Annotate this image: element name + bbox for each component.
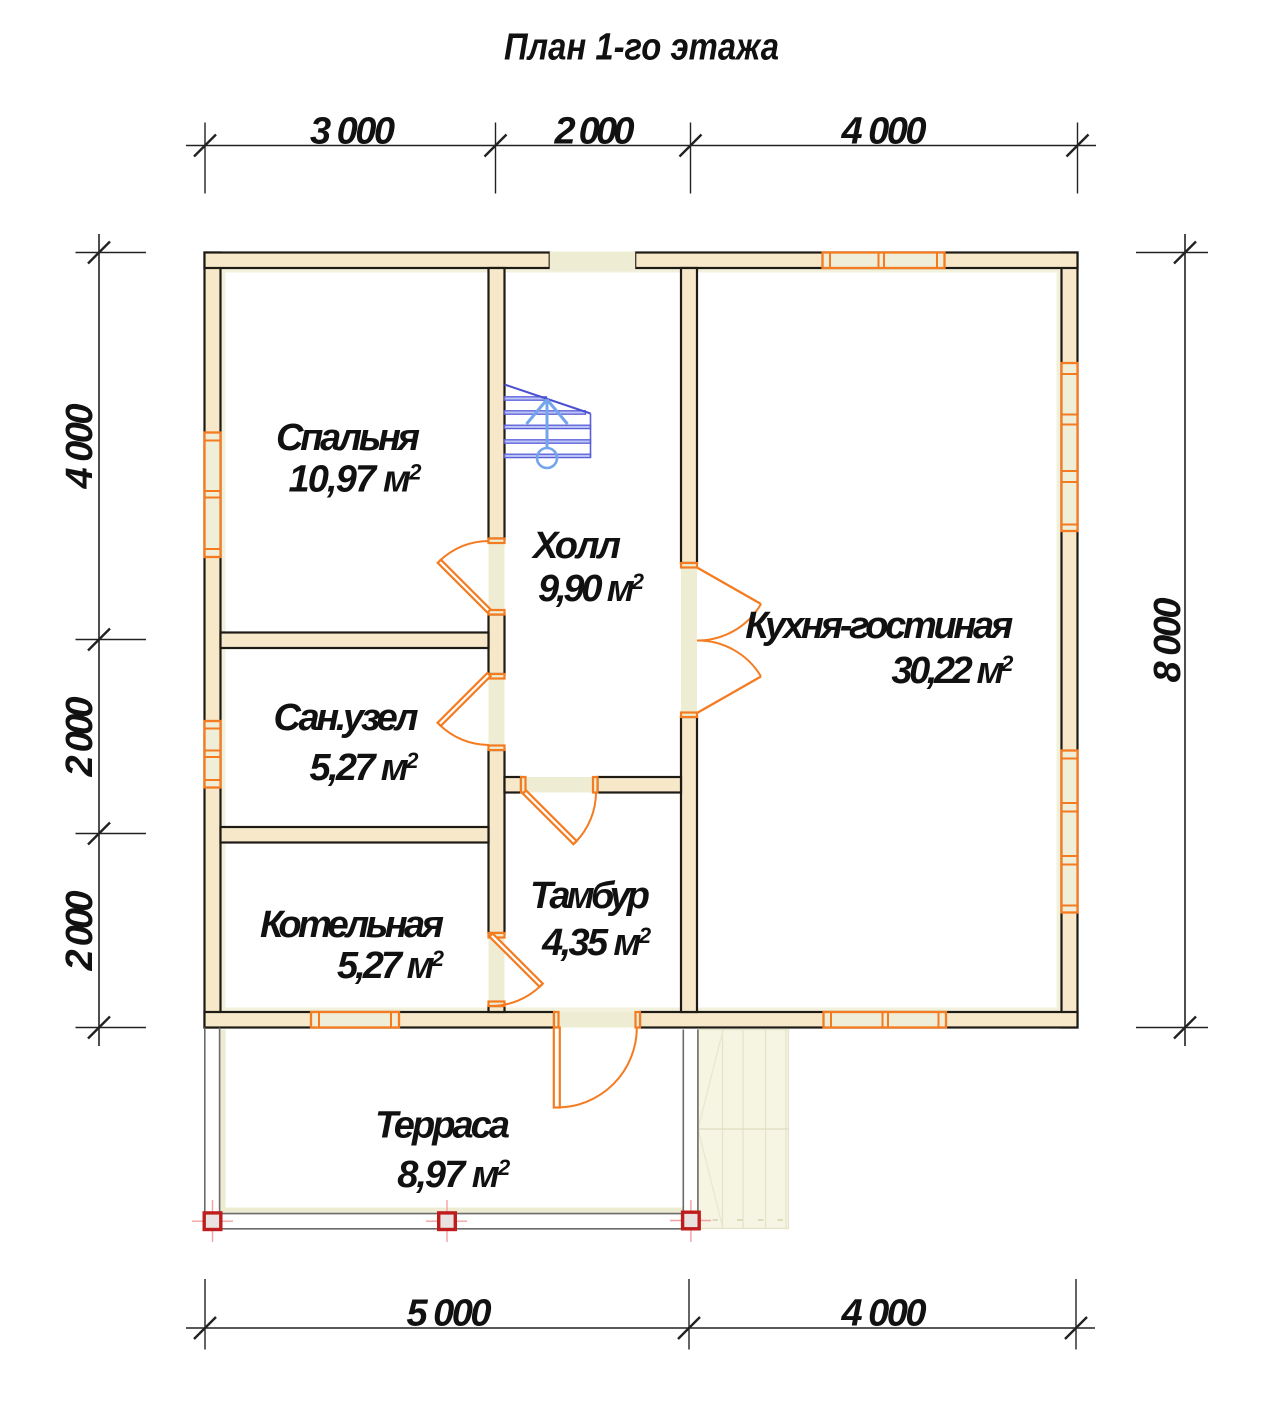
- svg-text:8 000: 8 000: [1147, 598, 1189, 683]
- svg-text:2 000: 2 000: [554, 111, 635, 153]
- svg-text:4 000: 4 000: [841, 111, 927, 153]
- svg-text:5,27 м2: 5,27 м2: [310, 747, 420, 789]
- svg-text:Тамбур: Тамбур: [530, 875, 650, 917]
- svg-text:Терраса: Терраса: [375, 1105, 510, 1147]
- svg-text:4,35 м2: 4,35 м2: [541, 922, 652, 964]
- svg-text:9,90 м2: 9,90 м2: [538, 568, 645, 610]
- svg-text:5 000: 5 000: [407, 1293, 492, 1335]
- svg-text:Спальня: Спальня: [276, 417, 420, 459]
- svg-text:Холл: Холл: [531, 525, 621, 567]
- svg-text:Кухня-гостиная: Кухня-гостиная: [745, 605, 1013, 647]
- svg-text:5,27 м2: 5,27 м2: [337, 945, 445, 987]
- svg-text:2 000: 2 000: [59, 891, 101, 972]
- svg-text:Сан.узел: Сан.узел: [274, 697, 419, 739]
- svg-text:3 000: 3 000: [310, 111, 395, 153]
- svg-text:10,97 м2: 10,97 м2: [289, 459, 423, 501]
- svg-text:2 000: 2 000: [59, 697, 101, 778]
- svg-text:Котельная: Котельная: [260, 904, 444, 946]
- svg-text:План 1-го этажа: План 1-го этажа: [504, 27, 779, 69]
- svg-text:4 000: 4 000: [841, 1293, 927, 1335]
- svg-text:30,22 м2: 30,22 м2: [891, 650, 1014, 692]
- svg-text:4 000: 4 000: [59, 404, 101, 490]
- svg-text:8,97 м2: 8,97 м2: [397, 1154, 511, 1196]
